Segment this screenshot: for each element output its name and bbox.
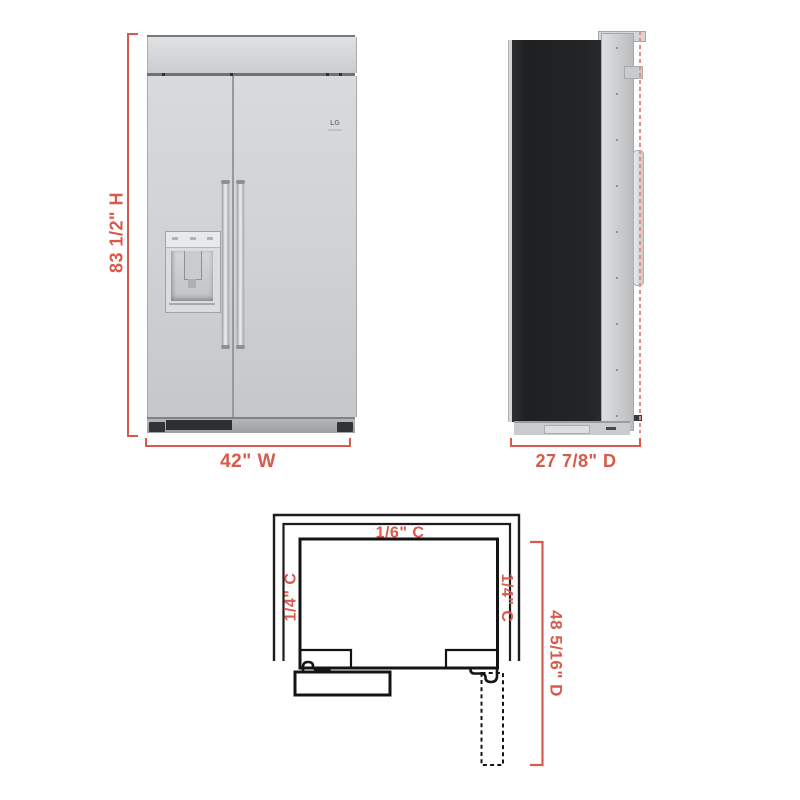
water-dispenser [165,231,221,313]
side-cabinet-screws [616,47,618,417]
dispenser-spout [188,279,196,288]
side-kick-plate [514,421,630,435]
side-kick-detail [606,427,616,430]
fridge-doors: LG [147,76,357,417]
product-dimensions-diagram: LG 83 1/2" H 42" W [0,0,800,800]
door-swing-dashed [482,673,504,765]
side-kick-recess [544,425,590,434]
cutout-depth-label: 48 5/16" D [547,610,566,697]
top-clearance-label: 1/6" C [376,525,425,542]
dispenser-button [207,237,213,240]
side-door-panel [512,40,601,422]
cutout-depth-bracket [530,542,543,765]
door-hinge-hook-right [471,668,498,682]
depth-dimension-tick-right [639,438,641,447]
door-open-left [295,672,390,695]
fridge-grille [147,37,357,73]
front-view: LG [147,35,355,433]
depth-dimension-line [510,445,641,447]
door-handle-left [222,181,229,348]
foot-left [149,422,165,432]
dispenser-tray [169,303,215,309]
height-dimension-tick-top [127,33,138,35]
height-dimension-tick-bottom [127,435,138,437]
dispenser-paddle [184,251,202,280]
dispenser-cavity [171,251,213,301]
left-clearance-label: 1/4" C [283,573,300,622]
height-dimension-label: 83 1/2" H [107,163,128,303]
kick-vent [166,420,232,430]
width-dimension-tick-left [145,438,147,447]
lg-logo: LG [324,120,346,131]
right-clearance-label: 1/4" C [498,574,515,623]
depth-dimension-label: 27 7/8" D [506,451,646,472]
depth-reference-dashline [639,31,641,433]
dispenser-button [190,237,196,240]
width-dimension-label: 42" W [188,451,308,473]
dispenser-button [172,237,178,240]
cabinet-top-outline [300,539,498,668]
kick-plate [147,419,355,433]
dispenser-control-panel [166,232,220,248]
door-handle-right [237,181,244,348]
side-view [505,31,645,434]
width-dimension-line [145,445,351,447]
foot-right [337,422,353,432]
brand-text: LG [330,120,340,127]
brand-subline [328,129,342,131]
door-gap [232,76,234,417]
depth-dimension-tick-left [510,438,512,447]
width-dimension-tick-right [349,438,351,447]
cutout-top-view: 1/6" C 1/4" C 1/4" C 48 5/16" D [250,500,580,795]
